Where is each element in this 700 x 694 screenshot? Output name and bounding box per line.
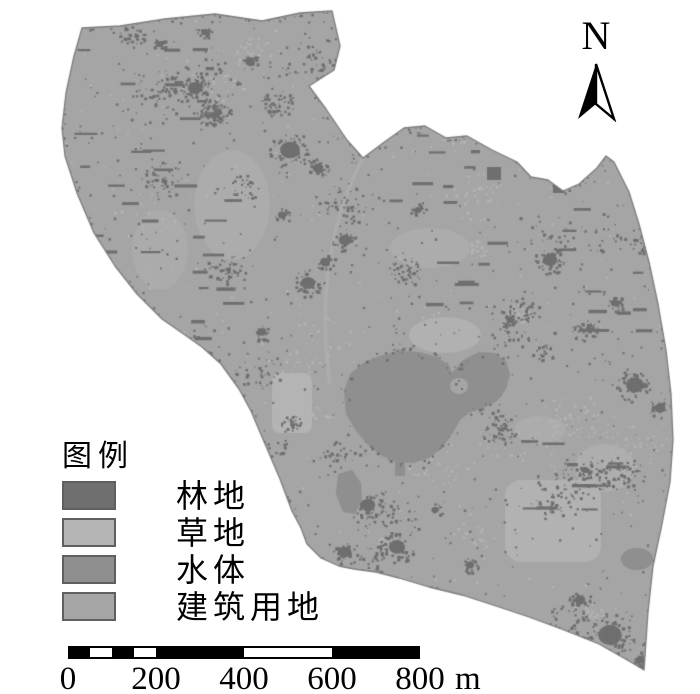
legend-item-grass: 草地: [62, 518, 324, 547]
legend-label-building: 建筑用地: [176, 591, 324, 623]
scale-bar-labels: 0 200 400 600 800 m: [68, 659, 548, 694]
legend-item-forest: 林地: [62, 481, 324, 510]
legend-label-forest: 林地: [176, 480, 250, 512]
north-arrow-icon: [574, 62, 618, 122]
legend-title: 图例: [62, 440, 324, 473]
legend-label-water: 水体: [176, 554, 250, 586]
scale-tick-label: 200: [131, 661, 181, 694]
scale-tick-label: 0: [60, 661, 77, 694]
legend-item-building: 建筑用地: [62, 592, 324, 621]
scale-unit-label: m: [455, 661, 481, 694]
legend-label-grass: 草地: [176, 517, 250, 549]
scale-bar-graphic: [68, 646, 420, 659]
scale-bar-segment: [90, 648, 112, 657]
legend-swatch-forest: [62, 481, 116, 510]
map-figure: N 图例 林地 草地 水体 建筑用地 0: [0, 0, 700, 694]
legend-swatch-water: [62, 555, 116, 584]
legend-swatch-grass: [62, 518, 116, 547]
north-indicator: N: [568, 14, 624, 122]
scale-bar-segment: [134, 648, 156, 657]
scale-bar-segment: [244, 648, 332, 657]
scale-tick-label: 400: [219, 661, 269, 694]
north-label: N: [568, 14, 624, 58]
legend-swatch-building: [62, 592, 116, 621]
scale-bar: 0 200 400 600 800 m: [68, 646, 548, 694]
legend-item-water: 水体: [62, 555, 324, 584]
legend: 图例 林地 草地 水体 建筑用地: [62, 440, 324, 621]
scale-tick-label: 600: [307, 661, 357, 694]
scale-tick-label: 800: [395, 661, 445, 694]
